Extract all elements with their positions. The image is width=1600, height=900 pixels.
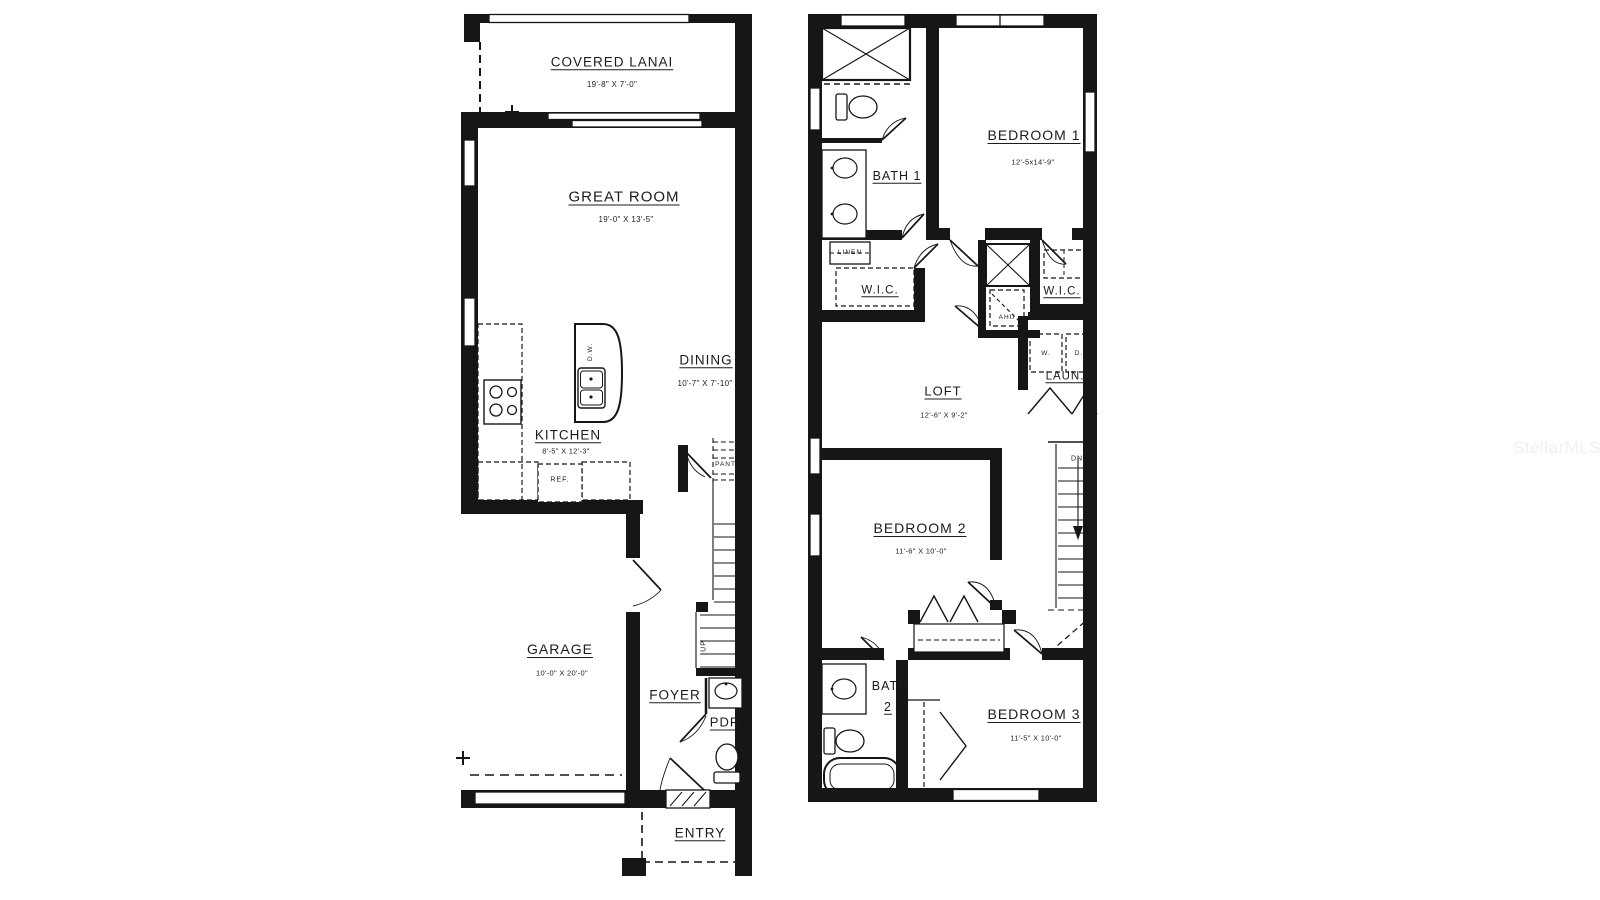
refrigerator-label: REF. — [550, 477, 569, 484]
loft-label: LOFT — [924, 385, 961, 398]
bed3-closet-bifold — [908, 700, 966, 780]
garage-dims: 10'-0" X 20'-0" — [536, 669, 588, 677]
floor1-walls — [461, 14, 752, 876]
bedroom2-label: BEDROOM 2 — [873, 521, 966, 535]
garage-label: GARAGE — [527, 642, 593, 656]
bath2-label-line2: 2 — [884, 701, 892, 714]
wic2-label: W.I.C. — [1043, 286, 1080, 298]
up-label: UP — [701, 640, 708, 652]
foyer-label: FOYER — [649, 688, 701, 702]
great-room-label: GREAT ROOM — [568, 190, 679, 205]
kitchen-label: KITCHEN — [535, 428, 601, 442]
cooktop — [484, 380, 521, 424]
wic1-label: W.I.C. — [861, 285, 898, 297]
dining-label: DINING — [679, 353, 732, 367]
bath2-label-line1: BATH — [872, 680, 908, 693]
lanai-dims: 19'-8" X 7'-0" — [587, 81, 637, 89]
shower — [822, 28, 910, 84]
great-room-dims: 19'-0" X 13'-5" — [598, 216, 653, 224]
attic-access-closet — [986, 244, 1030, 286]
floor1-doors — [633, 452, 711, 790]
ahu-label: AHU — [999, 315, 1016, 322]
pantry-label: PANTRY — [715, 462, 747, 469]
bedroom2-dims: 11'-6" X 10'-0" — [895, 547, 946, 555]
bedroom3-dims: 11'-5" X 10'-0" — [1010, 734, 1061, 742]
dining-dims: 10'-7" X 7'-10" — [677, 380, 732, 388]
dishwasher-label: D.W. — [588, 343, 595, 361]
washer-label: W. — [1041, 351, 1051, 358]
bath1-toilet — [836, 94, 847, 120]
entry-label: ENTRY — [675, 826, 726, 840]
lanai-label: COVERED LANAI — [551, 55, 674, 69]
bath2-vanity — [822, 664, 866, 714]
laundry-label: LAUN. — [1046, 371, 1085, 383]
floor1-dashed — [470, 42, 749, 862]
bedroom1-label: BEDROOM 1 — [987, 128, 1080, 142]
loft-dims: 12'-6" X 9'-2" — [920, 411, 967, 419]
bath1-label: BATH 1 — [873, 170, 922, 183]
floorplan-canvas: COVERED LANAI 19'-8" X 7'-0" GREAT ROOM … — [0, 0, 1600, 900]
watermark: StellarMLS — [1513, 438, 1600, 458]
bath2-toilet — [824, 728, 835, 754]
dryer-label: D. — [1075, 351, 1084, 358]
dn-label: DN — [1071, 456, 1083, 463]
pdr-toilet — [716, 744, 738, 770]
floorplan-drawing — [0, 0, 1600, 900]
kitchen-dims: 8'-5" X 12'-3" — [542, 447, 589, 455]
bath1-vanity — [822, 150, 866, 238]
bedroom1-dims: 12'-5x14'-9" — [1012, 158, 1055, 166]
bedroom3-label: BEDROOM 3 — [987, 707, 1080, 721]
kitchen-island — [575, 324, 622, 422]
floor2-doors — [861, 118, 1066, 660]
pdr-label: PDR — [710, 716, 740, 729]
linen-label: LINEN — [838, 250, 862, 257]
bath1-fixtures — [822, 94, 877, 238]
